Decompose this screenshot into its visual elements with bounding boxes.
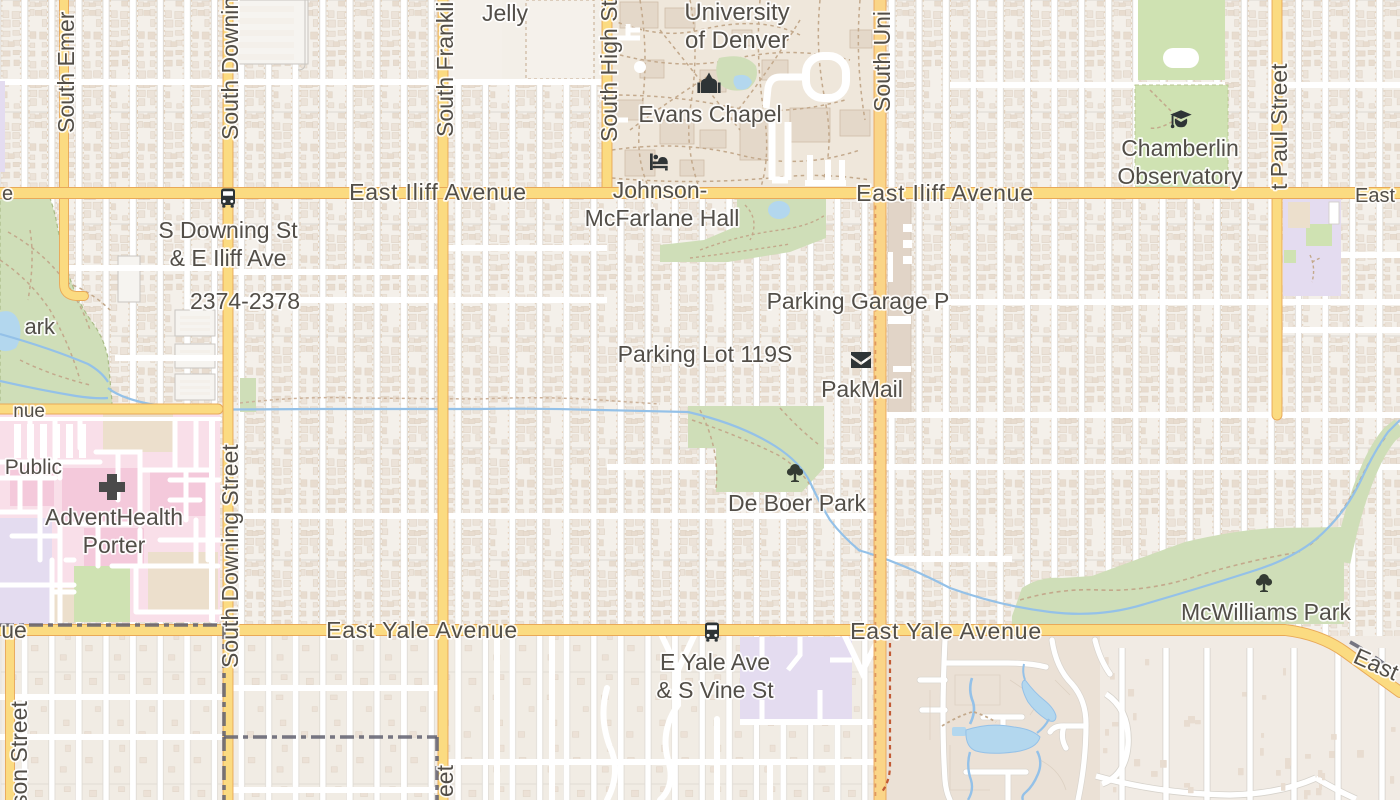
svg-text:East Yale Avenue: East Yale Avenue <box>326 617 518 643</box>
svg-text:South Uni: South Uni <box>869 11 895 112</box>
svg-text:Porter: Porter <box>83 532 146 558</box>
svg-text:Johnson-: Johnson- <box>613 177 708 203</box>
svg-text:E Yale Ave: E Yale Ave <box>660 649 770 675</box>
svg-text:East Yale Avenue: East Yale Avenue <box>850 618 1042 644</box>
svg-text:ue: ue <box>1 617 27 643</box>
svg-text:Parking Lot 119S: Parking Lot 119S <box>618 341 793 367</box>
svg-text:AdventHealth: AdventHealth <box>45 504 183 530</box>
svg-text:e: e <box>2 183 13 205</box>
svg-text:eet: eet <box>432 764 458 797</box>
svg-text:McFarlane Hall: McFarlane Hall <box>585 205 740 231</box>
svg-text:University: University <box>684 0 789 26</box>
svg-text:Evans Chapel: Evans Chapel <box>638 101 781 127</box>
svg-text:South Downing Street: South Downing Street <box>217 444 243 668</box>
svg-text:t Paul Street: t Paul Street <box>1266 63 1292 190</box>
svg-text:East Iliff Avenue: East Iliff Avenue <box>856 180 1034 206</box>
svg-text:East Iliff Avenue: East Iliff Avenue <box>349 179 527 205</box>
svg-text:& E Iliff Ave: & E Iliff Ave <box>170 245 287 271</box>
svg-text:S Downing St: S Downing St <box>158 217 298 243</box>
svg-text:2374-2378: 2374-2378 <box>190 288 300 314</box>
svg-text:PakMail: PakMail <box>821 376 903 402</box>
svg-text:South Downing: South Downing <box>217 0 243 140</box>
svg-text:South Frankli: South Frankli <box>432 1 458 137</box>
svg-text:of Denver: of Denver <box>685 27 789 54</box>
svg-text:& S Vine St: & S Vine St <box>656 677 774 703</box>
svg-text:McWilliams Park: McWilliams Park <box>1181 599 1351 625</box>
svg-text:East Ili: East Ili <box>1355 185 1400 207</box>
svg-text:De Boer Park: De Boer Park <box>728 490 867 516</box>
svg-text:Public: Public <box>5 456 62 479</box>
svg-text:Chamberlin: Chamberlin <box>1121 135 1239 161</box>
svg-text:Observatory: Observatory <box>1117 163 1243 189</box>
svg-text:nue: nue <box>13 401 45 422</box>
svg-text:Parking Garage P: Parking Garage P <box>767 288 950 314</box>
svg-text:Jelly: Jelly <box>482 0 529 26</box>
svg-text:South Emer: South Emer <box>53 11 79 133</box>
svg-text:son Street: son Street <box>6 701 32 800</box>
svg-text:South High St: South High St <box>596 0 622 142</box>
svg-text:ark: ark <box>24 314 56 339</box>
